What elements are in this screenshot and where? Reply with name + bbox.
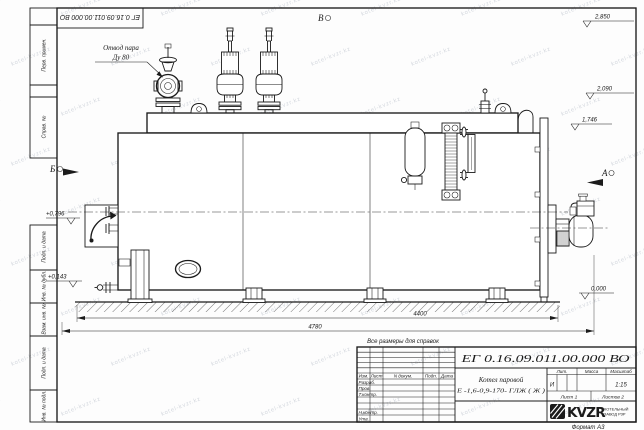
lit-value: И — [550, 383, 555, 389]
view-marker-v: В — [318, 13, 324, 23]
drum-fitting — [479, 89, 491, 113]
view-a-arrow — [587, 179, 603, 186]
burner-unit — [548, 194, 594, 253]
view-marker-b: Б — [49, 164, 56, 174]
elevation-0796: +0,796 — [46, 212, 65, 218]
rear-flange-plate — [540, 118, 548, 297]
doc-number: ЕГ 0.16.09.011.00.000 ВО — [460, 354, 630, 365]
masshtab-label: Масштаб — [610, 369, 632, 374]
col-izm: Изм. — [359, 374, 369, 379]
row-prov: Пров. — [359, 386, 371, 391]
stamp-podp-data-2: Подп. и дата — [42, 347, 48, 379]
steam-outlet-valve — [154, 44, 182, 113]
callout-line2: Ду 80 — [112, 54, 130, 62]
format-note: Формат А3 — [572, 425, 605, 430]
product-name-line1: Котел паровой — [478, 376, 524, 384]
stamp-inv-dubl: Инв. № дубл. — [42, 271, 48, 302]
row-tkontr: Т.контр. — [359, 392, 378, 397]
doc-number-top: ЕГ 0.16.09.011.00.000 ВО — [59, 13, 140, 20]
col-data: Дата — [440, 374, 454, 379]
dim-4400: 4400 — [413, 312, 427, 318]
row-utv: Утв. — [359, 416, 369, 421]
col-ndokum: N докум. — [394, 374, 413, 379]
row-nkontr: Н.контр. — [359, 410, 378, 415]
stamp-podp-data-1: Подп. и дата — [42, 231, 48, 263]
elevation-0000: 0,000 — [591, 287, 607, 293]
safety-valve-left — [217, 28, 243, 113]
elevation-2090: 2,090 — [596, 87, 613, 93]
product-name-line2: Е -1,6-0,9-170- ГЛЖ ( Ж ) — [456, 388, 545, 395]
logo-text: KVZR — [567, 405, 606, 421]
drawing-canvas: Перв. примен. Справ. № Подп. и дата Инв.… — [0, 0, 644, 430]
stamp-vzam-inv: Взам. инв. № — [42, 303, 48, 335]
stamp-inv-podl: Инв. № подл. — [42, 390, 48, 421]
row-razrab: Разраб. — [359, 380, 376, 385]
callout-line1: Отвод пара — [103, 44, 139, 52]
front-door-mechanism — [85, 205, 118, 247]
steam-outlet-callout: Отвод пара Ду 80 — [95, 44, 163, 78]
title-block: ЕГ 0.16.09.011.00.000 ВО Изм. Лист N док… — [357, 347, 636, 422]
sheets-label: Листов 2 — [601, 395, 624, 401]
doc-number-top-box: ЕГ 0.16.09.011.00.000 ВО — [57, 8, 143, 28]
lit-label: Лит. — [556, 369, 568, 374]
scale-value: 1:15 — [615, 383, 627, 389]
dim-4780: 4780 — [308, 325, 322, 331]
logo-caption-2: ЗАВОД РЗР — [604, 412, 626, 417]
elevation-2850: 2,850 — [594, 15, 611, 21]
view-marker-a: А — [601, 168, 608, 178]
stamp-perv-primen: Перв. примен. — [42, 38, 48, 71]
manufacturer-logo: KVZR КОТЕЛЬНЫЙ ЗАВОД РЗР — [550, 404, 629, 421]
elevation-1746: 1,746 — [582, 118, 598, 124]
massa-label: Масса — [585, 369, 599, 374]
view-b-arrow — [63, 169, 79, 176]
elevation-0143: +0,143 — [48, 275, 67, 281]
col-podp: Подп. — [425, 374, 437, 379]
sheet-label: Лист 1 — [560, 395, 578, 401]
col-list: Лист — [370, 374, 383, 379]
stamp-sprav-n: Справ. № — [42, 115, 48, 138]
reference-note: Все размеры для справок — [367, 339, 440, 345]
safety-valve-right — [256, 28, 282, 113]
ground-line — [75, 302, 560, 312]
drawing-sheet: kotel-kvzr.kzkotel-kvzr.kzkotel-kvzr.kzk… — [0, 0, 644, 430]
